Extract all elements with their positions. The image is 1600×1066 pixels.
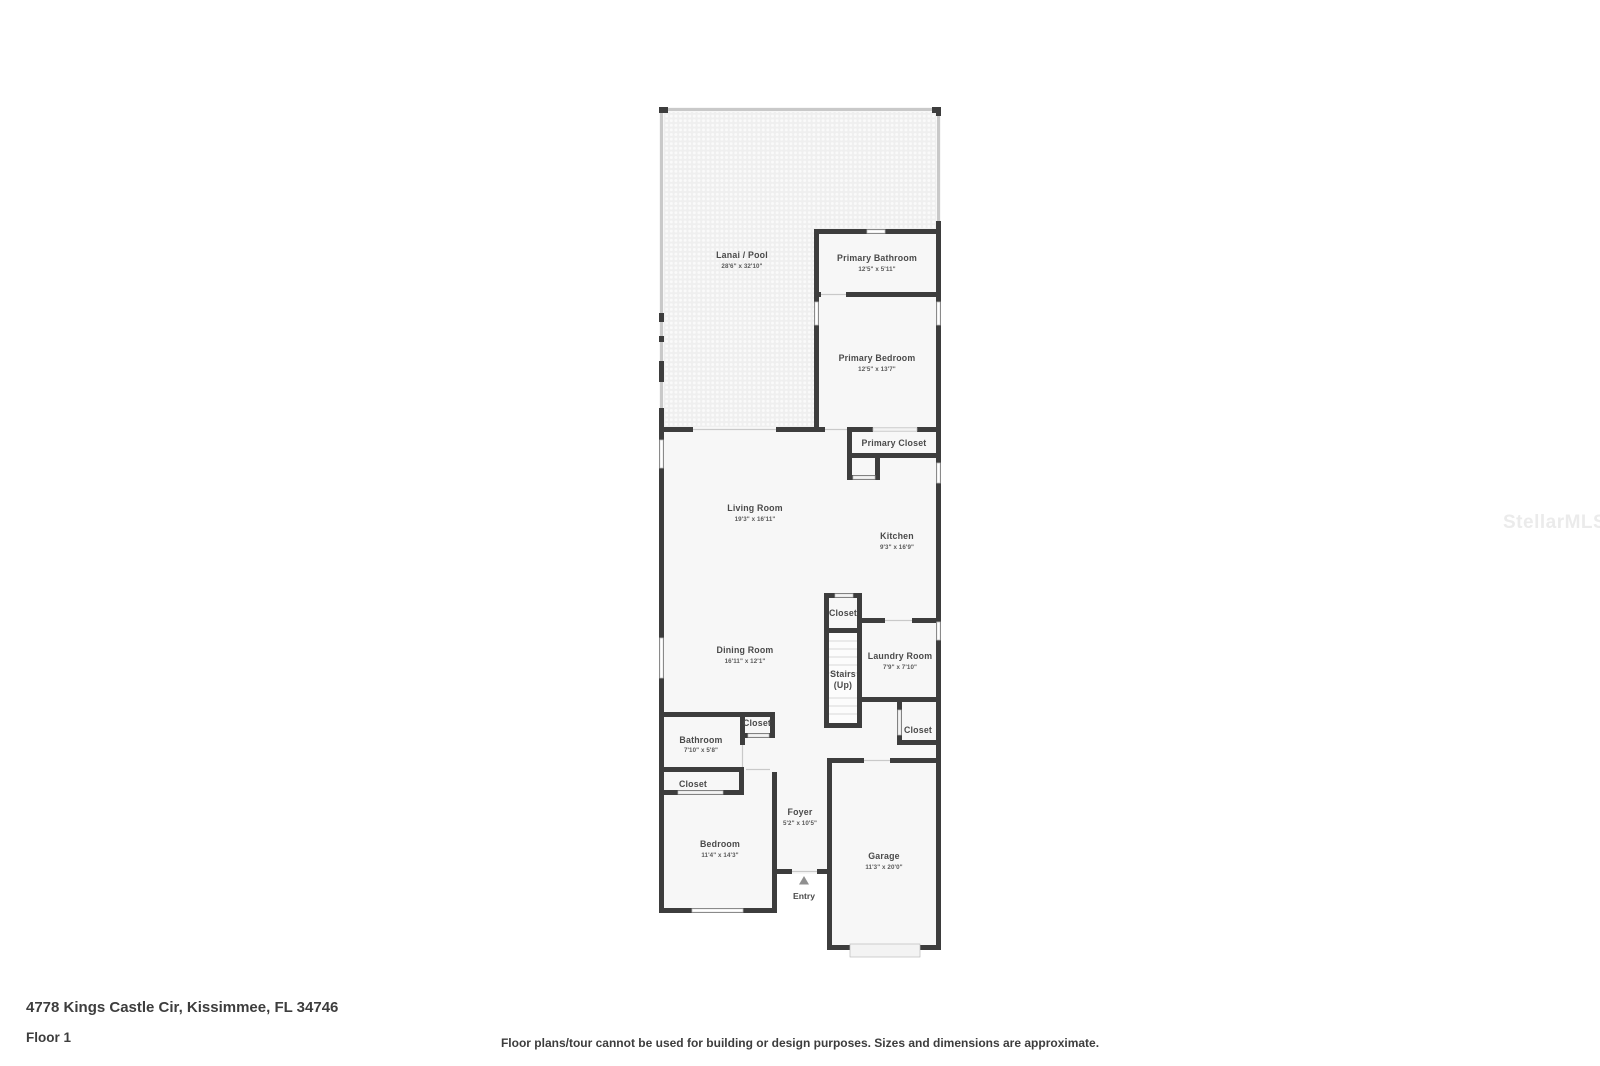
room-dims-bedroom: 11'4" x 14'3" [701, 852, 738, 859]
room-label-closet-stairs: Closet [829, 608, 857, 618]
room-label-closet-bathroom: Closet [743, 718, 771, 728]
floor-plan-svg: Lanai / Pool 28'6" x 32'10" Primary Bath… [646, 100, 946, 970]
room-label-foyer: Foyer [788, 807, 813, 817]
room-label-bathroom: Bathroom [679, 735, 722, 745]
room-dims-lanai: 28'6" x 32'10" [721, 263, 762, 270]
room-dims-dining-room: 16'11" x 12'1" [725, 658, 766, 665]
property-address: 4778 Kings Castle Cir, Kissimmee, FL 347… [26, 999, 338, 1016]
room-label-primary-closet: Primary Closet [862, 438, 927, 448]
room-label-closet-garage: Closet [904, 725, 932, 735]
room-label-garage: Garage [868, 851, 900, 861]
room-label-laundry-room: Laundry Room [868, 651, 932, 661]
entry-marker: Entry [793, 876, 815, 901]
disclaimer-text: Floor plans/tour cannot be used for buil… [0, 1036, 1600, 1050]
room-label-kitchen: Kitchen [880, 531, 914, 541]
room-dims-bathroom: 7'10" x 5'8" [684, 747, 718, 754]
floor-plan: Lanai / Pool 28'6" x 32'10" Primary Bath… [646, 100, 946, 970]
room-label-lanai: Lanai / Pool [716, 250, 768, 260]
room-label-living-room: Living Room [727, 503, 782, 513]
room-label-dining-room: Dining Room [717, 645, 774, 655]
room-label-stairs: Stairs [830, 669, 856, 679]
entry-arrow-icon [799, 876, 809, 885]
room-label-bedroom: Bedroom [700, 839, 740, 849]
room-label-primary-bedroom: Primary Bedroom [839, 353, 916, 363]
room-dims-primary-bathroom: 12'5" x 5'11" [858, 266, 895, 273]
stellar-mls-watermark: StellarMLS [1503, 512, 1600, 534]
room-dims-garage: 11'3" x 20'0" [865, 864, 902, 871]
room-dims-kitchen: 9'3" x 16'9" [880, 544, 914, 551]
room-label-closet-bedroom: Closet [679, 779, 707, 789]
room-label-stairs-up: (Up) [834, 680, 852, 690]
garage-door [850, 944, 920, 957]
room-dims-primary-bedroom: 12'5" x 13'7" [858, 366, 896, 373]
entry-label: Entry [793, 891, 815, 901]
floor-plan-page: Lanai / Pool 28'6" x 32'10" Primary Bath… [0, 0, 1600, 1066]
room-dims-laundry-room: 7'9" x 7'10" [883, 664, 917, 671]
room-dims-living-room: 19'3" x 16'11" [735, 516, 776, 523]
room-dims-foyer: 5'2" x 10'5" [783, 820, 817, 827]
room-label-primary-bathroom: Primary Bathroom [837, 253, 917, 263]
